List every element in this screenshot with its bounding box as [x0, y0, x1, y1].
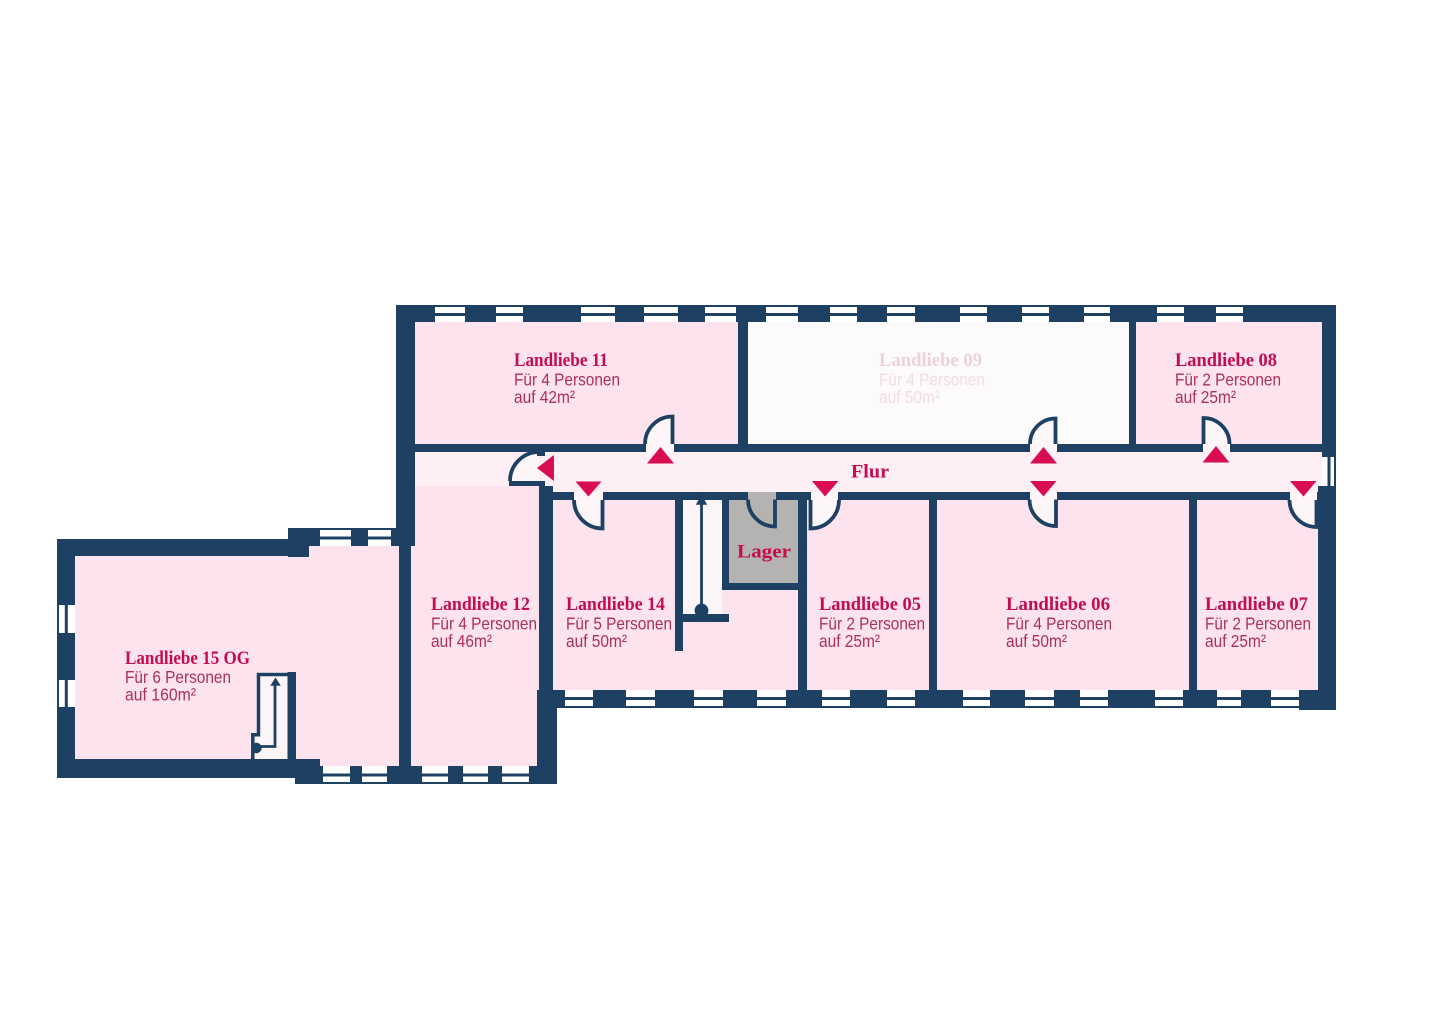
svg-text:auf 25m²: auf 25m²: [819, 631, 880, 651]
svg-text:Landliebe 08: Landliebe 08: [1175, 350, 1277, 371]
svg-text:Landliebe 09: Landliebe 09: [879, 350, 982, 371]
svg-text:auf 50m²: auf 50m²: [879, 387, 940, 407]
svg-text:Landliebe 14: Landliebe 14: [566, 594, 665, 615]
svg-text:auf 50m²: auf 50m²: [1006, 631, 1067, 651]
svg-text:auf 160m²: auf 160m²: [125, 685, 196, 705]
svg-text:Landliebe 05: Landliebe 05: [819, 594, 921, 615]
svg-text:auf 46m²: auf 46m²: [431, 631, 492, 651]
svg-text:Flur: Flur: [851, 462, 890, 483]
svg-text:Landliebe 07: Landliebe 07: [1205, 594, 1308, 615]
svg-text:Lager: Lager: [737, 542, 792, 563]
svg-text:Landliebe 15 OG: Landliebe 15 OG: [125, 648, 250, 669]
svg-text:auf 25m²: auf 25m²: [1175, 387, 1236, 407]
svg-text:auf 25m²: auf 25m²: [1205, 631, 1266, 651]
svg-text:Landliebe 12: Landliebe 12: [431, 594, 530, 615]
svg-text:auf 50m²: auf 50m²: [566, 631, 627, 651]
svg-text:Landliebe 11: Landliebe 11: [514, 350, 608, 371]
svg-text:Landliebe 06: Landliebe 06: [1006, 594, 1110, 615]
svg-text:auf 42m²: auf 42m²: [514, 387, 575, 407]
